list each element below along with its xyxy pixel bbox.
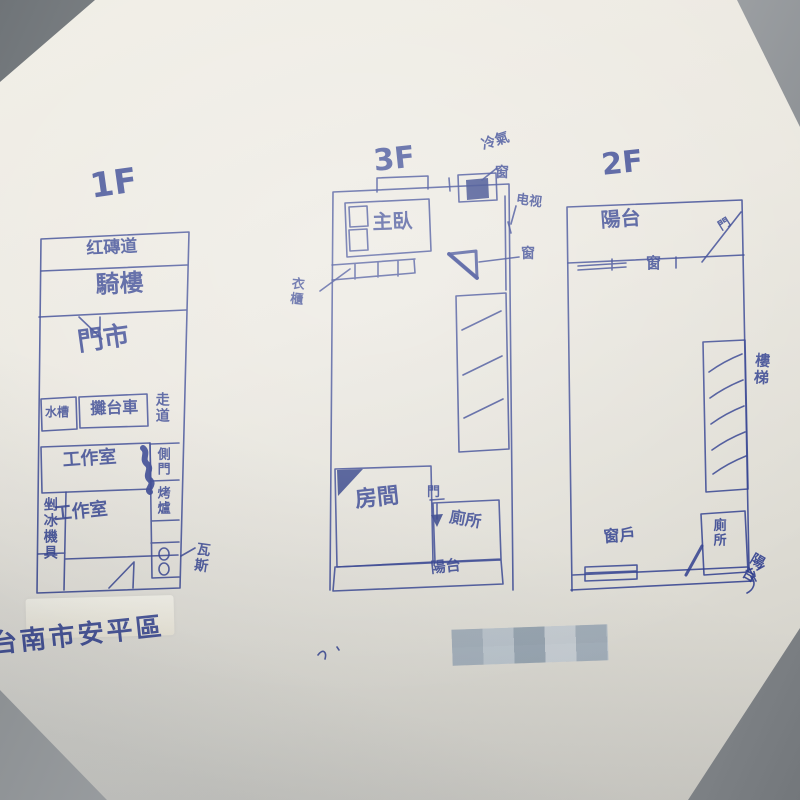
label-side-door: 側門 (155, 447, 169, 477)
floor3-plan-strokes (320, 168, 519, 591)
caption-pen-marks (318, 647, 339, 659)
label-room: 房間 (354, 484, 400, 512)
label-stairs: 樓梯 (752, 352, 770, 387)
toilet-door-diagonal (686, 546, 702, 575)
wardrobe-pointer-line (320, 269, 350, 291)
label-window-wall: 窗 (646, 256, 661, 272)
label-oven: 烤爐 (155, 486, 169, 516)
floor2-plan-strokes (567, 200, 764, 593)
label-toilet: 廁所 (711, 518, 725, 548)
window-pointer-line (479, 257, 519, 262)
label-door: 門 (427, 486, 440, 500)
label-window-bottom: 窗戶 (603, 527, 636, 546)
stairs-hatch (456, 293, 509, 452)
label-master-bed: 主臥 (372, 211, 413, 233)
label-window-top: 窗 (495, 166, 509, 181)
label-gas: 瓦斯 (192, 541, 211, 575)
stairs-hatch (703, 340, 748, 492)
gas-knob (159, 563, 169, 575)
label-tv: 电视 (515, 193, 543, 210)
floor1-title: 1F (88, 163, 139, 205)
gas-pointer-line (181, 548, 195, 556)
label-cart: 攤台車 (90, 399, 139, 417)
label-arcade: 騎樓 (95, 270, 144, 298)
censored-blur (451, 624, 608, 665)
ac-unit-fill (466, 178, 489, 200)
label-wardrobe: 衣櫃 (287, 276, 304, 307)
balcony-strip (333, 560, 503, 591)
label-studio-a: 工作室 (62, 448, 117, 471)
gas-knob (159, 548, 169, 560)
label-sidewalk: 红磚道 (86, 238, 138, 258)
label-balcony-top: 陽台 (600, 207, 641, 231)
label-window-side: 窗 (521, 247, 535, 262)
bottom-door-swing (109, 562, 134, 588)
label-balcony: 陽台 (430, 558, 461, 577)
label-aisle: 走道 (154, 392, 169, 424)
label-ice-gear: 剉冰機具 (42, 497, 57, 561)
bed-pillows (349, 206, 368, 251)
floor2-title: 2F (600, 146, 644, 182)
wardrobe (332, 259, 415, 280)
floor3-title: 3F (372, 142, 416, 178)
label-sink: 水槽 (45, 406, 69, 419)
